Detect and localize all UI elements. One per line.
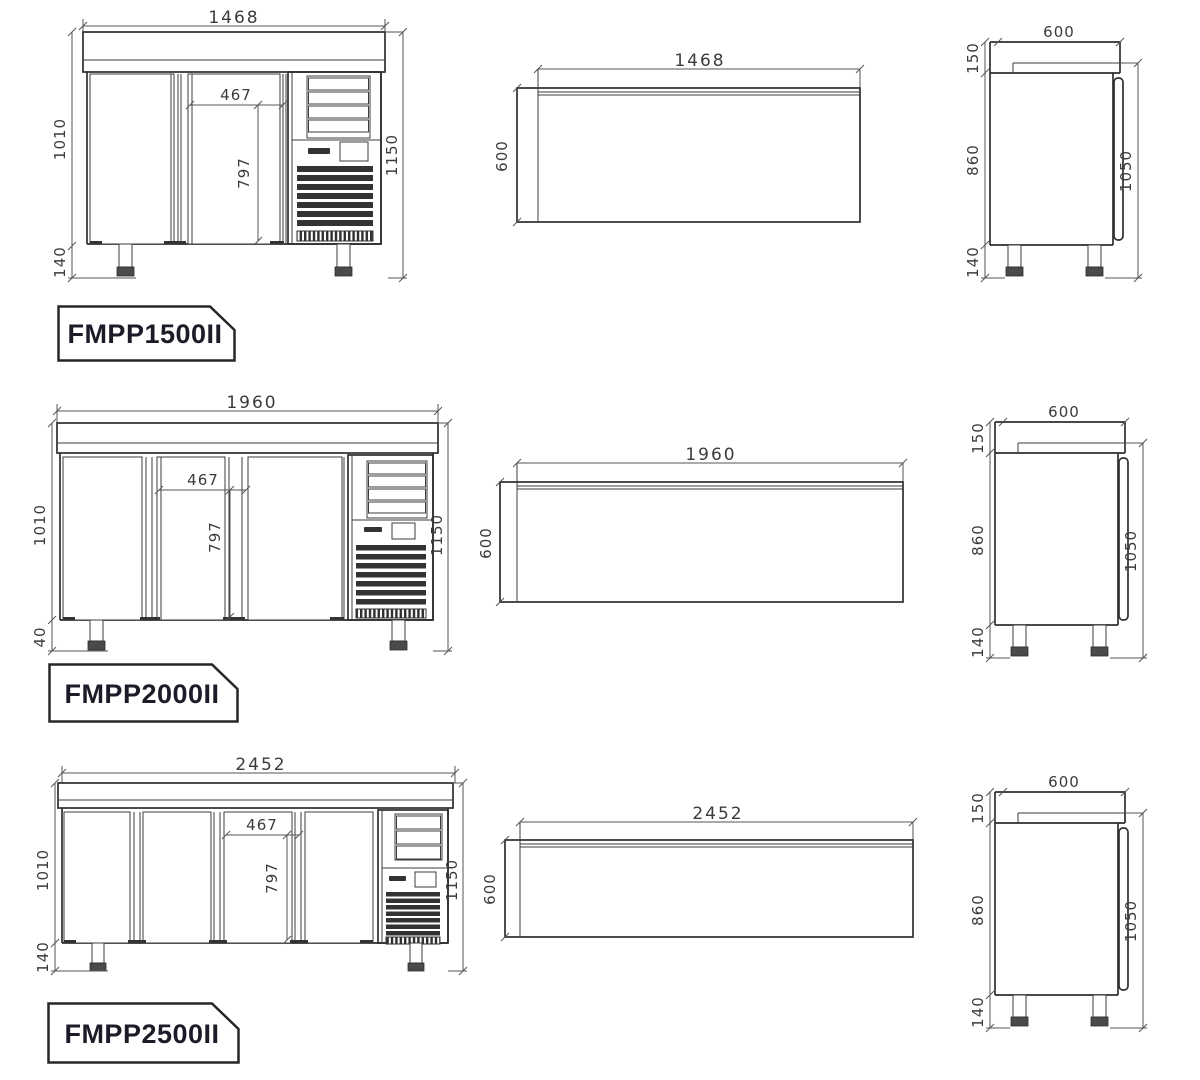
technical-drawing-sheet: { "sheet_title": "Refrigerated counter d…: [0, 0, 1200, 1080]
dim-label-interior-height: 1010: [31, 504, 49, 546]
model-label-fmpp2000: FMPP2000II: [48, 663, 239, 723]
dim-overall-width: 1468: [534, 51, 864, 88]
door-sill-mark: [164, 241, 186, 244]
dim-label-depth: 600: [1048, 773, 1080, 791]
door-sill-mark: [360, 940, 373, 943]
top-view-fmpp1500: 1468 600: [490, 50, 880, 232]
dim-overall-width: 2452: [58, 755, 459, 783]
door-sill-mark: [128, 940, 146, 943]
drawer-slats: [307, 76, 370, 138]
model-label-fmpp2500: FMPP2500II: [47, 1002, 240, 1064]
dim-label-door-width: 467: [187, 471, 219, 489]
foot: [1088, 245, 1101, 267]
worktop-outline: [517, 69, 860, 222]
door-sill-mark: [330, 617, 344, 620]
dim-overall-width: 1960: [53, 393, 442, 423]
dim-label-overall-height: 1150: [428, 514, 446, 556]
dim-label-door-height: 797: [235, 157, 253, 189]
dim-label-worktop-height: 150: [969, 792, 987, 824]
foot: [1093, 625, 1106, 647]
door-sill-mark: [223, 617, 245, 620]
foot: [90, 620, 103, 641]
model-label-fmpp1500: FMPP1500II: [57, 305, 236, 362]
door-sill-mark: [140, 617, 160, 620]
door-panel-1: [63, 457, 142, 620]
feet: [117, 244, 352, 276]
dim-label-door-height: 797: [206, 521, 224, 553]
compressor-bay: [348, 455, 433, 620]
side-view-fmpp1500: 600 150 860 140 1050: [945, 12, 1195, 290]
dim-label-foot-height: 140: [51, 246, 69, 278]
foot: [1013, 995, 1026, 1017]
front-view-fmpp1500: 1468: [40, 8, 460, 300]
dim-label-depth: 600: [1048, 403, 1080, 421]
door-sill-mark: [90, 241, 102, 244]
side-view-fmpp2500: 600 150 860 140 1050: [950, 762, 1200, 1040]
dim-label-overall-width: 1960: [685, 445, 736, 465]
model-name: FMPP2500II: [64, 1019, 219, 1049]
dim-label-overall-width: 1960: [226, 393, 277, 413]
drawer-slats: [395, 814, 442, 860]
dim-label-side-height: 1050: [1122, 900, 1140, 942]
dim-label-overall-width: 1468: [208, 8, 259, 28]
ventilation-louvers: [356, 545, 426, 605]
dim-label-overall-width: 1468: [674, 51, 725, 71]
top-view-fmpp2000: 1960 600: [480, 445, 920, 615]
dim-label-foot-height: 40: [31, 626, 49, 647]
dim-label-side-height: 1050: [1122, 530, 1140, 572]
door-panel-4: [305, 812, 373, 943]
dim-label-overall-width: 2452: [692, 804, 743, 824]
worktop-band: [57, 423, 438, 453]
dim-label-body-height: 860: [964, 144, 982, 176]
worktop-outline: [500, 463, 903, 602]
compressor-bay: [378, 810, 448, 944]
foot: [337, 244, 350, 267]
dim-label-depth: 600: [1043, 23, 1075, 41]
dim-label-door-width: 467: [246, 816, 278, 834]
foot: [1093, 995, 1106, 1017]
dim-label-depth: 600: [493, 140, 511, 172]
worktop-outline: [505, 822, 913, 937]
dim-label-door-width: 467: [220, 86, 252, 104]
door-sill-mark: [209, 940, 227, 943]
dim-label-overall-height: 1150: [383, 134, 401, 176]
ventilation-louvers: [297, 166, 373, 226]
dim-label-foot-height: 140: [964, 246, 982, 278]
front-view-fmpp2500: 2452: [30, 758, 475, 1006]
side-profile: [995, 792, 1128, 1026]
ventilation-grille: [356, 609, 426, 618]
door-panel-2: [143, 812, 211, 943]
door-sill-mark: [290, 940, 308, 943]
compressor-bay: [288, 72, 381, 244]
top-view-fmpp2500: 2452 600: [480, 800, 925, 945]
side-profile: [990, 42, 1123, 276]
thermostat-display: [340, 142, 368, 161]
dim-label-side-height: 1050: [1117, 150, 1135, 192]
ventilation-grille: [297, 231, 373, 241]
dim-label-overall-height: 1150: [443, 859, 461, 901]
dim-label-foot-height: 140: [969, 626, 987, 658]
brand-logo: [308, 148, 330, 154]
dim-label-depth: 600: [477, 527, 495, 559]
dim-label-worktop-height: 150: [969, 422, 987, 454]
feet: [90, 943, 424, 971]
door-sill-mark: [270, 241, 284, 244]
foot: [392, 620, 405, 641]
dim-overall-width: 1468: [79, 8, 389, 34]
thermostat-display: [392, 523, 415, 539]
brand-logo: [389, 876, 406, 881]
model-name: FMPP1500II: [67, 319, 222, 349]
dim-label-body-height: 860: [969, 524, 987, 556]
dim-label-worktop-height: 150: [964, 42, 982, 74]
door-panel-1: [90, 74, 174, 244]
worktop-band: [58, 783, 453, 808]
dim-label-overall-width: 2452: [235, 755, 286, 775]
brand-logo: [364, 527, 382, 532]
dim-label-depth: 600: [481, 873, 499, 905]
side-profile: [995, 422, 1128, 656]
thermostat-display: [415, 872, 436, 887]
dim-label-foot-height: 140: [34, 941, 52, 973]
side-view-fmpp2000: 600 150 860 140 1050: [950, 392, 1200, 670]
foot: [1008, 245, 1021, 267]
front-view-fmpp2000: 1960: [30, 395, 462, 663]
dim-label-door-height: 797: [263, 862, 281, 894]
door-panel-1: [64, 812, 130, 943]
dim-overall-width: 2452: [516, 804, 917, 840]
door-sill-mark: [64, 940, 76, 943]
dim-label-interior-height: 1010: [51, 118, 69, 160]
feet: [88, 620, 407, 650]
dim-label-interior-height: 1010: [34, 849, 52, 891]
door-sill-mark: [63, 617, 75, 620]
foot: [92, 943, 104, 963]
dim-label-body-height: 860: [969, 894, 987, 926]
dim-label-foot-height: 140: [969, 996, 987, 1028]
worktop-band: [83, 32, 385, 72]
ventilation-louvers: [386, 892, 440, 936]
dim-overall-height: 1150: [383, 28, 407, 282]
dim-overall-width: 1960: [513, 445, 907, 482]
foot: [410, 943, 422, 963]
door-panel-3: [248, 457, 342, 620]
foot: [1013, 625, 1026, 647]
model-name: FMPP2000II: [64, 679, 219, 709]
foot: [119, 244, 132, 267]
